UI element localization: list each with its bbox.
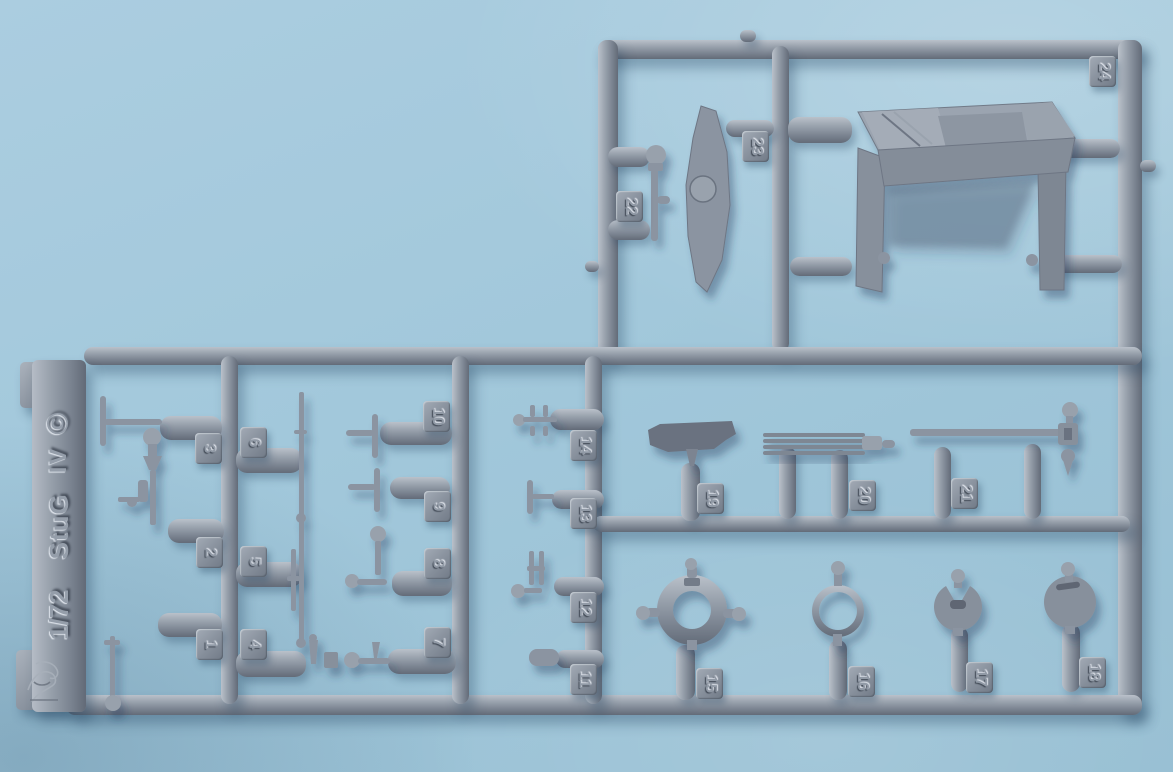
gate-part-20-left	[779, 447, 796, 519]
part-tab-16: 16	[848, 666, 875, 697]
blade-disc	[690, 176, 716, 202]
sprue-stub-right	[1140, 160, 1156, 172]
scale-label: 1/72	[44, 589, 75, 640]
gate-part-22-upper	[608, 147, 650, 167]
runner-horizontal-d	[593, 516, 1130, 532]
sprue-photo: 1/72 StuG IV ©	[0, 0, 1173, 772]
runner-right	[1118, 40, 1142, 714]
runner-horizontal-main	[84, 347, 1142, 365]
part-tab-9: 9	[424, 491, 451, 522]
part-tab-2: 2	[196, 537, 223, 568]
part-number-13: 13	[574, 505, 592, 523]
part-tab-21: 21	[951, 478, 978, 509]
gate-part-22-lower	[608, 220, 650, 240]
part-tab-10: 10	[423, 401, 450, 432]
gate-part-18	[1062, 624, 1080, 692]
gate-part-16	[829, 640, 847, 700]
part-number-24: 24	[1093, 63, 1111, 81]
part-tab-11: 11	[570, 664, 597, 695]
part-number-11: 11	[574, 671, 592, 688]
part-tab-8: 8	[424, 548, 451, 579]
copyright-symbol: ©	[42, 412, 76, 434]
tool-parts-inner	[511, 405, 559, 666]
gate-part-14	[550, 409, 604, 430]
part-number-17: 17	[970, 669, 988, 687]
part-number-7: 7	[429, 638, 447, 647]
part-number-19: 19	[701, 490, 719, 508]
part-number-9: 9	[429, 502, 447, 511]
gate-part-24-right-lower	[1054, 255, 1122, 273]
part-tab-19: 19	[697, 483, 724, 514]
part-number-21: 21	[955, 485, 973, 503]
part-tab-17: 17	[966, 662, 993, 693]
kit-name-label: StuG	[44, 493, 75, 559]
part-number-3: 3	[200, 444, 218, 453]
part-number-15: 15	[700, 675, 718, 693]
part-number-22: 22	[620, 198, 638, 216]
part-tab-7: 7	[424, 627, 451, 658]
part-tab-12: 12	[570, 592, 597, 623]
gate-part-20-right	[831, 450, 848, 519]
part-tab-20: 20	[849, 480, 876, 511]
part-number-8: 8	[429, 559, 447, 568]
part-number-20: 20	[853, 487, 871, 505]
kit-variant-label: IV	[45, 447, 73, 474]
gate-part-24-left-lower	[790, 257, 852, 276]
label-bar-text: 1/72 StuG IV ©	[32, 362, 86, 712]
part-number-2: 2	[201, 548, 219, 557]
runner-inner-top-frame	[772, 46, 789, 352]
part-tab-3: 3	[195, 433, 222, 464]
part-number-5: 5	[245, 557, 263, 566]
part-tab-13: 13	[570, 498, 597, 529]
part-number-1: 1	[201, 640, 219, 649]
part-number-23: 23	[746, 138, 764, 156]
part-15-ring	[636, 558, 746, 650]
part-number-18: 18	[1083, 664, 1101, 682]
gate-part-21-right	[1024, 444, 1041, 519]
part-number-12: 12	[574, 599, 592, 617]
gate-part-21-left	[934, 447, 951, 519]
part-tab-22: 22	[616, 191, 643, 222]
part-tab-14: 14	[570, 430, 597, 461]
part-tab-18: 18	[1079, 657, 1106, 688]
part-17-hatch-disc	[934, 569, 982, 636]
part-tab-24: 24	[1089, 56, 1116, 87]
runner-vertical-b	[452, 356, 469, 704]
part-tab-1: 1	[196, 629, 223, 660]
runner-top	[598, 40, 1142, 59]
part-tab-5: 5	[240, 546, 267, 577]
part-19-plate	[648, 421, 736, 466]
part-23-blade	[686, 106, 730, 292]
part-tab-6: 6	[240, 427, 267, 458]
part-number-4: 4	[245, 640, 263, 649]
part-tab-23: 23	[742, 131, 769, 162]
gate-part-15	[676, 645, 695, 700]
gate-part-24-right-upper	[1054, 139, 1120, 158]
runner-left-top-frame	[598, 40, 618, 358]
part-24-superstructure	[856, 102, 1075, 292]
part-number-16: 16	[852, 673, 870, 691]
tool-parts-middle	[344, 414, 390, 668]
part-16-ring	[812, 561, 864, 646]
part-tab-4: 4	[240, 629, 267, 660]
part-tab-15: 15	[696, 668, 723, 699]
sprue-stub-left	[585, 261, 599, 272]
part-number-14: 14	[574, 437, 592, 455]
part-number-6: 6	[245, 438, 263, 447]
sprue-stub-top	[740, 30, 756, 42]
part-number-10: 10	[427, 408, 445, 426]
gate-part-24-left-upper	[788, 117, 852, 143]
